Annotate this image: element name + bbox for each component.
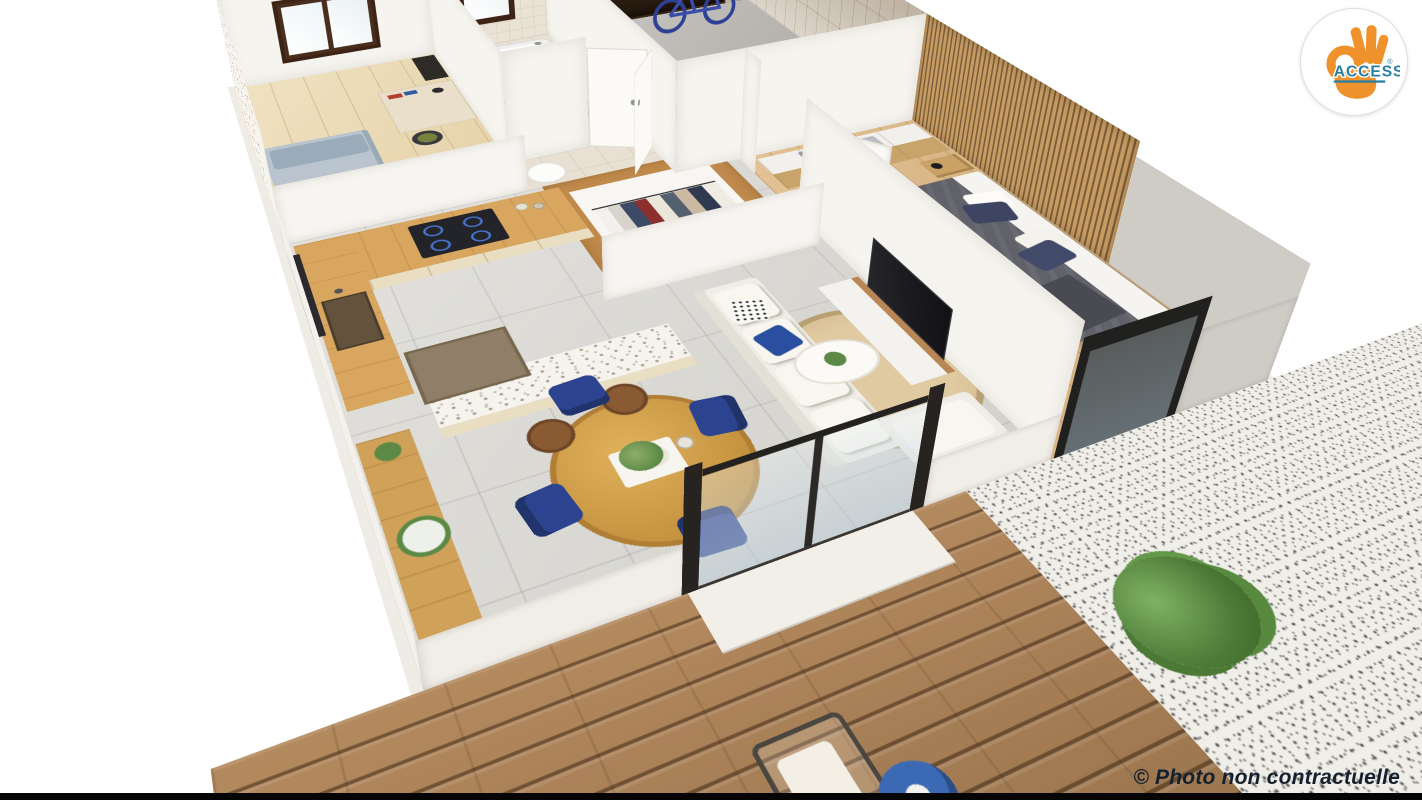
ok-hand-icon: ACCESS ®: [1308, 16, 1400, 108]
access-logo: ACCESS ®: [1300, 8, 1408, 116]
coffee-table-plant: [820, 349, 851, 368]
floorplan-render: ACCESS ® © Photo non contractuelle: [0, 0, 1422, 800]
house-3d-scene: [163, 0, 1422, 800]
patterned-pillow: [730, 299, 771, 322]
logo-mark-svg: ®: [1387, 57, 1393, 66]
counter-jar-1: [513, 202, 530, 212]
photo-disclaimer: © Photo non contractuelle: [1133, 766, 1400, 790]
bottom-bar: [0, 793, 1422, 800]
kids-window-pane-right: [327, 0, 373, 48]
kitchen-sink: [321, 291, 385, 351]
kids-window: [271, 0, 381, 64]
bedside-lamp: [929, 162, 945, 170]
kids-window-pane-left: [281, 2, 329, 56]
kids-chair-seat: [416, 132, 440, 144]
bench-plant: [372, 439, 404, 464]
wc-door-handle: [638, 98, 640, 107]
kids-bed-pillow: [269, 133, 371, 170]
logo-text-svg: ACCESS: [1334, 64, 1400, 81]
slider-mullion: [804, 436, 823, 547]
counter-jar-2: [531, 202, 547, 211]
desk-book-red: [387, 93, 403, 99]
desk-lamp: [431, 87, 445, 94]
desk-book-blue: [403, 90, 418, 96]
outdoor-chair-cushion: [775, 739, 867, 800]
